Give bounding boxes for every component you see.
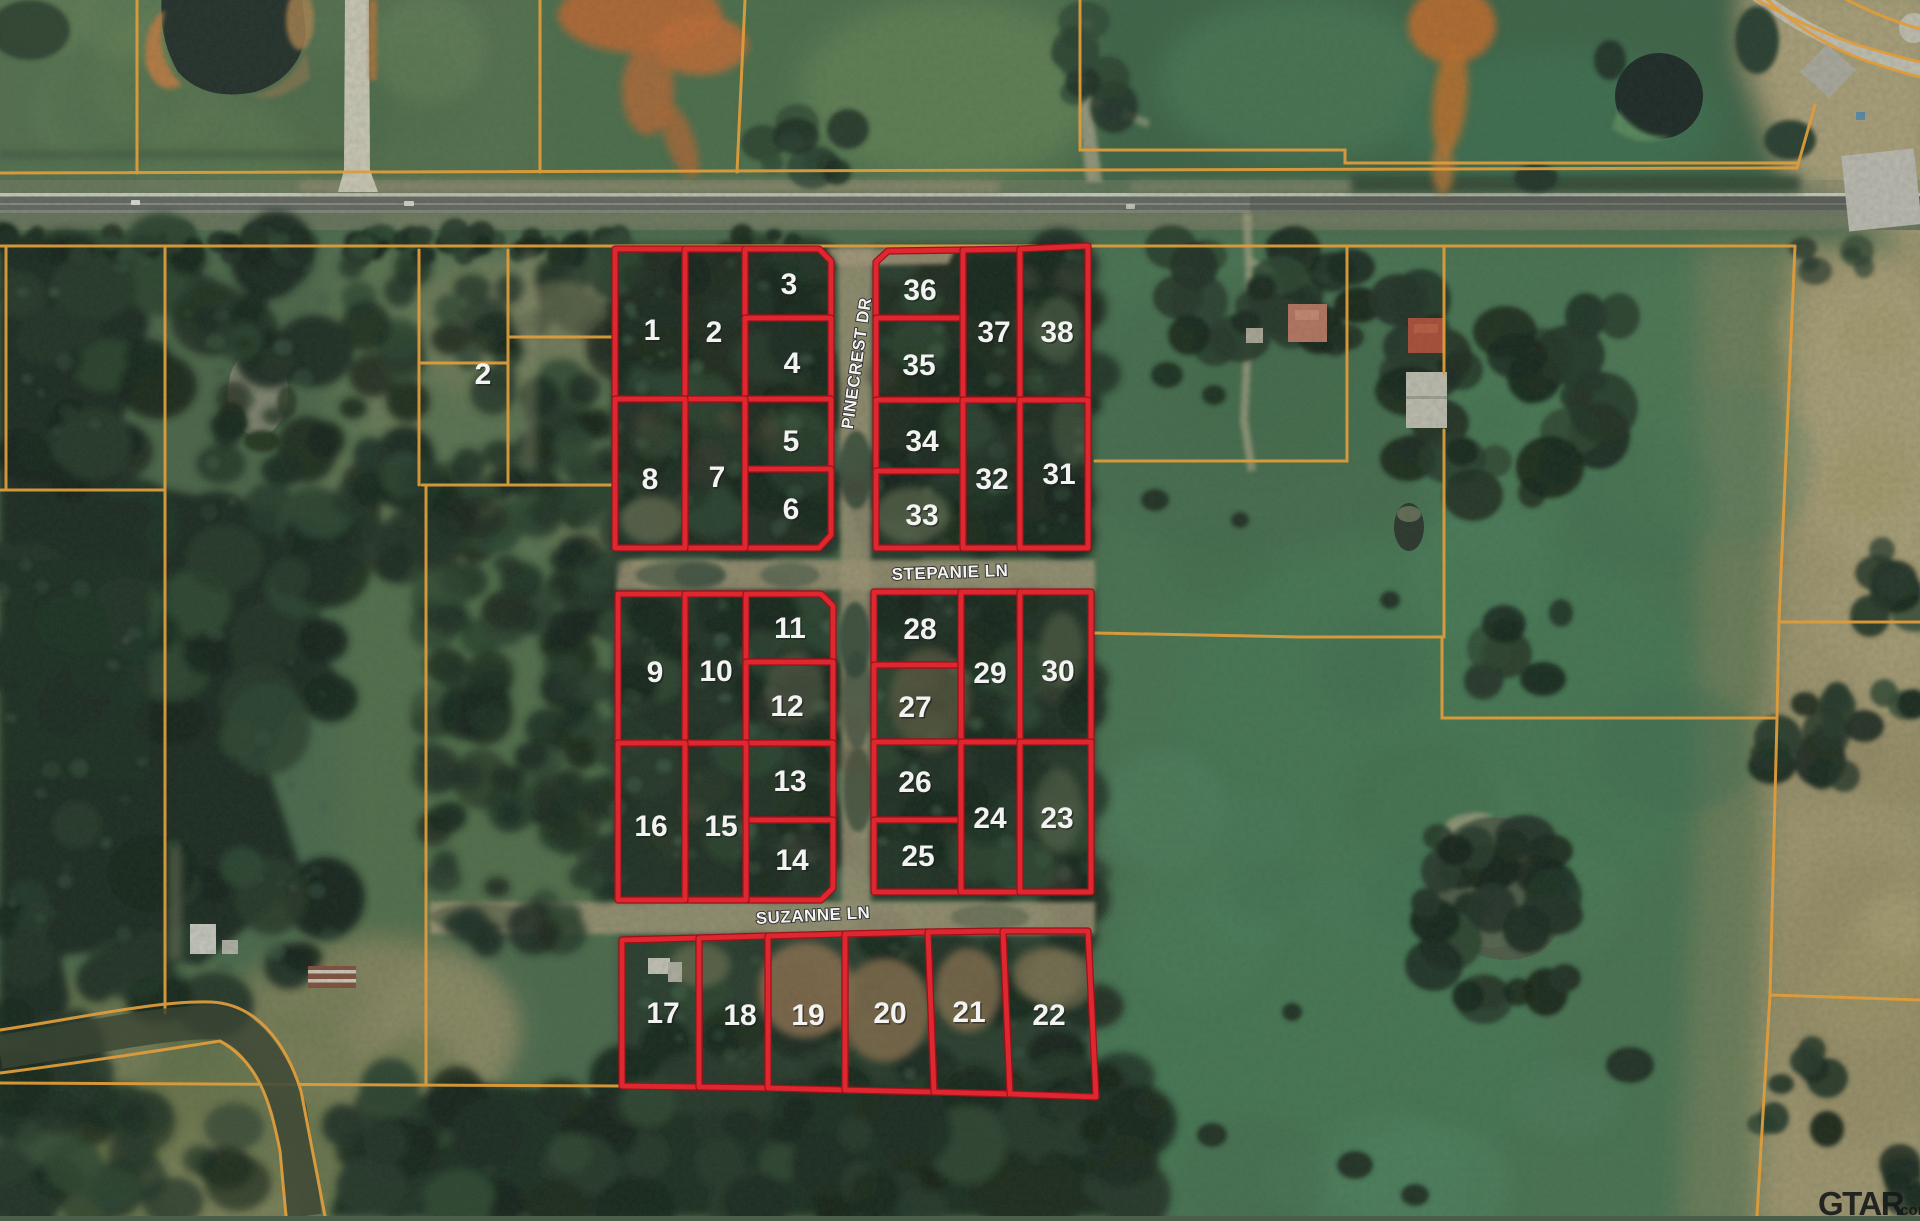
svg-text:.com: .com: [1896, 1202, 1920, 1216]
svg-text:GTAR: GTAR: [1818, 1185, 1905, 1216]
